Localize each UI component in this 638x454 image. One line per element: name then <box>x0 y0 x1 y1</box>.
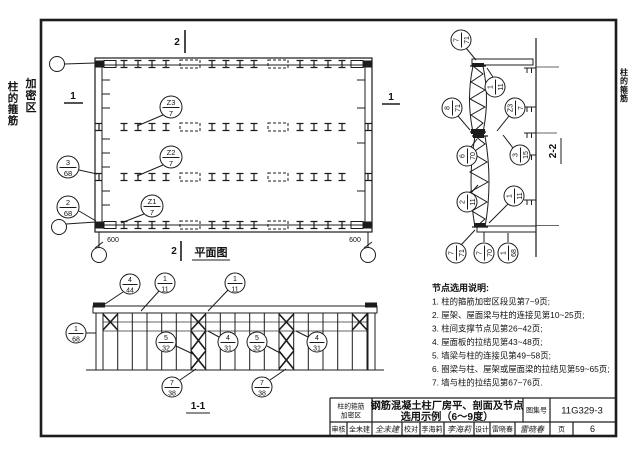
callout-z3-section: Z3 7 <box>497 98 525 131</box>
svg-text:1: 1 <box>74 326 78 333</box>
callout-3-15: 3 15 <box>503 135 530 165</box>
callout-2-11: 2 11 <box>457 185 478 212</box>
plan-title: 平面图 <box>192 246 230 260</box>
title-block: 柱的箍筋 加密区 钢筋混凝土柱厂房平、剖面及节点 选用示例（6～9度） 图集号 … <box>330 398 616 436</box>
svg-text:11: 11 <box>470 198 477 205</box>
svg-text:7: 7 <box>169 159 173 168</box>
atlas-title-line1: 钢筋混凝土柱厂房平、剖面及节点 <box>371 399 524 412</box>
note-item: 7. 墙与柱的拉结见第67~76页. <box>432 378 543 388</box>
svg-text:1-1: 1-1 <box>191 401 206 412</box>
callout-z2: Z2 7 <box>137 146 182 176</box>
plan-view: 600 600 2 2 1 1 Z3 7 Z2 7 <box>50 30 401 263</box>
plan-wall-ticks-right <box>357 80 365 191</box>
svg-text:31: 31 <box>224 346 232 353</box>
note-item: 5. 墙梁与柱的连接见第49~58页; <box>432 351 551 361</box>
svg-text:5: 5 <box>255 335 259 342</box>
svg-text:2: 2 <box>460 200 467 204</box>
note-item: 2. 屋架、屋面梁与柱的连接见第10~25页; <box>432 310 584 320</box>
svg-text:1: 1 <box>501 251 508 255</box>
callout-7-71-top: 7 71 <box>451 30 476 60</box>
callout-1-11-elev-b: 1 11 <box>208 273 245 311</box>
svg-text:4: 4 <box>226 335 230 342</box>
svg-text:70: 70 <box>487 249 494 257</box>
section-title: 2-2 <box>548 138 561 164</box>
callout-8-71: 8 71 <box>442 98 470 130</box>
plan-column-row-z3 <box>96 123 372 131</box>
notes-title: 节点选用说明: <box>432 282 489 293</box>
svg-text:7: 7 <box>170 380 174 387</box>
dim-600-right: 600 <box>349 237 361 244</box>
grid-bubble-bottom-left <box>52 220 97 235</box>
plan-wall-ticks-left <box>102 80 110 205</box>
svg-text:11: 11 <box>231 287 238 294</box>
left-tab-text-1: 柱的箍筋 <box>7 80 19 127</box>
svg-text:71: 71 <box>455 104 462 112</box>
svg-text:3: 3 <box>513 153 520 157</box>
section-corbels <box>524 68 536 205</box>
svg-text:68: 68 <box>72 337 80 344</box>
section-truss-upper <box>470 63 487 134</box>
atlas-title-line2: 选用示例（6～9度） <box>401 410 494 423</box>
plan-column-row-top <box>95 60 373 68</box>
callout-5-32-a: 5 32 <box>156 332 193 354</box>
right-edge-tab-text: 柱的箍筋 <box>619 67 628 103</box>
svg-text:8: 8 <box>445 106 452 110</box>
svg-text:68: 68 <box>511 249 518 257</box>
audit-name: 全未建 <box>349 425 370 434</box>
note-item: 1. 柱的箍筋加密区段见第7~9页; <box>432 297 550 307</box>
section-mark-1-right: 1 <box>382 92 400 104</box>
callout-z3: Z3 7 <box>137 96 182 126</box>
plan-column-row-z2 <box>96 173 372 181</box>
svg-text:1: 1 <box>70 91 76 102</box>
elevation-1-1: 4 44 1 11 1 11 1 68 5 32 <box>66 273 384 413</box>
svg-text:71: 71 <box>459 249 466 257</box>
svg-text:68: 68 <box>64 169 72 178</box>
left-tab-text-2: 加密区 <box>25 76 37 114</box>
note-item: 3. 柱间支撑节点见第26~42页; <box>432 324 543 334</box>
callout-7-71-bottom: 7 71 <box>446 230 475 263</box>
svg-text:1: 1 <box>388 92 394 103</box>
design-name: 雷晓春 <box>492 425 513 434</box>
svg-text:7: 7 <box>454 38 461 42</box>
svg-text:1: 1 <box>507 194 514 198</box>
elevation-title: 1-1 <box>186 401 210 413</box>
svg-text:Z1: Z1 <box>148 197 157 206</box>
svg-text:1: 1 <box>233 276 237 283</box>
svg-text:7: 7 <box>260 380 264 387</box>
callout-7-38-a: 7 38 <box>162 369 196 398</box>
svg-text:11: 11 <box>498 83 505 90</box>
audit-signature: 全未建 <box>375 425 400 434</box>
plan-wall-outer <box>95 58 372 232</box>
callout-2-68: 2 68 <box>57 196 96 221</box>
svg-text:7: 7 <box>150 208 154 217</box>
svg-text:2-2: 2-2 <box>548 143 559 158</box>
svg-text:71: 71 <box>464 36 471 44</box>
svg-text:3: 3 <box>66 158 70 167</box>
svg-text:1: 1 <box>488 85 495 89</box>
design-signature: 雷晓春 <box>520 425 545 434</box>
callout-1-68-elev: 1 68 <box>66 323 96 344</box>
callout-3-68: 3 68 <box>57 156 97 178</box>
svg-text:38: 38 <box>258 391 266 398</box>
svg-text:4: 4 <box>315 335 319 342</box>
check-name: 李海莉 <box>422 425 443 434</box>
callout-1-11-lower: 1 11 <box>489 186 524 223</box>
svg-text:44: 44 <box>126 288 134 295</box>
callout-4-31-a: 4 31 <box>208 331 238 353</box>
callout-7-38-b: 7 38 <box>252 369 286 398</box>
svg-text:Z2: Z2 <box>167 148 176 157</box>
elevation-roof-band <box>93 306 377 313</box>
elevation-end-column-right <box>368 313 375 370</box>
callout-4-31-b: 4 31 <box>296 331 327 353</box>
svg-text:32: 32 <box>162 346 170 353</box>
check-label: 校对 <box>404 425 418 434</box>
section-2-2: 7 71 1 11 Z3 7 8 71 6 70 <box>442 30 561 263</box>
svg-text:2: 2 <box>174 37 180 48</box>
callout-1-68-section: 1 68 <box>498 233 518 263</box>
callout-6-70: 6 70 <box>457 139 477 166</box>
check-signature: 李海莉 <box>447 425 473 434</box>
left-edge-tab: 柱的箍筋 加密区 <box>7 76 37 127</box>
section-mark-2-bottom: 2 <box>171 241 181 261</box>
atlas-no-label: 图集号 <box>526 406 547 415</box>
callout-z1: Z1 7 <box>121 195 163 223</box>
page-label: 页 <box>558 426 565 434</box>
svg-text:31: 31 <box>313 346 321 353</box>
callout-1-11-elev-a: 1 11 <box>141 273 175 311</box>
grid-line-bubble-left <box>92 232 107 263</box>
atlas-no-value: 11G329-3 <box>561 406 603 417</box>
callout-7-70: 7 70 <box>474 232 494 263</box>
svg-text:6: 6 <box>460 154 467 158</box>
notes: 节点选用说明: 1. 柱的箍筋加密区段见第7~9页; 2. 屋架、屋面梁与柱的连… <box>432 282 610 388</box>
svg-text:1: 1 <box>163 276 167 283</box>
plan-wall-inner <box>102 65 365 225</box>
note-item: 6. 圈梁与柱、屋架或屋面梁的拉结见第59~65页; <box>432 364 610 374</box>
category-line1: 柱的箍筋 <box>337 402 364 411</box>
section-mark-1-left: 1 <box>64 91 83 103</box>
section-mark-2-top: 2 <box>174 30 185 53</box>
svg-text:38: 38 <box>168 391 176 398</box>
svg-text:Z3: Z3 <box>508 104 515 112</box>
svg-text:5: 5 <box>164 335 168 342</box>
elevation-end-column-left <box>96 313 103 370</box>
dim-600-left: 600 <box>107 237 119 244</box>
audit-label: 审核 <box>332 425 346 434</box>
svg-text:平面图: 平面图 <box>195 246 228 259</box>
svg-text:Z3: Z3 <box>167 98 176 107</box>
svg-text:68: 68 <box>64 209 72 218</box>
svg-text:4: 4 <box>128 277 132 284</box>
svg-text:11: 11 <box>161 287 168 294</box>
callout-4-44: 4 44 <box>102 274 140 306</box>
svg-text:7: 7 <box>518 106 525 110</box>
svg-text:15: 15 <box>523 151 530 159</box>
svg-text:7: 7 <box>449 251 456 255</box>
svg-text:2: 2 <box>171 246 177 257</box>
note-item: 4. 屋面板的拉结见第43~48页; <box>432 337 543 347</box>
svg-text:7: 7 <box>169 109 173 118</box>
callout-1-11-upper: 1 11 <box>485 68 505 97</box>
grid-bubble-top-left <box>50 57 96 72</box>
grid-line-bubble-right <box>361 232 376 263</box>
category-line2: 加密区 <box>341 411 362 420</box>
svg-text:32: 32 <box>253 346 261 353</box>
drawing-page: 柱的箍筋 加密区 柱的箍筋 600 600 2 <box>0 0 638 454</box>
svg-text:2: 2 <box>66 198 70 207</box>
svg-text:70: 70 <box>470 152 477 160</box>
page-number: 6 <box>590 424 595 434</box>
svg-text:11: 11 <box>517 192 524 199</box>
svg-text:7: 7 <box>477 251 484 255</box>
design-label: 设计 <box>475 425 489 434</box>
